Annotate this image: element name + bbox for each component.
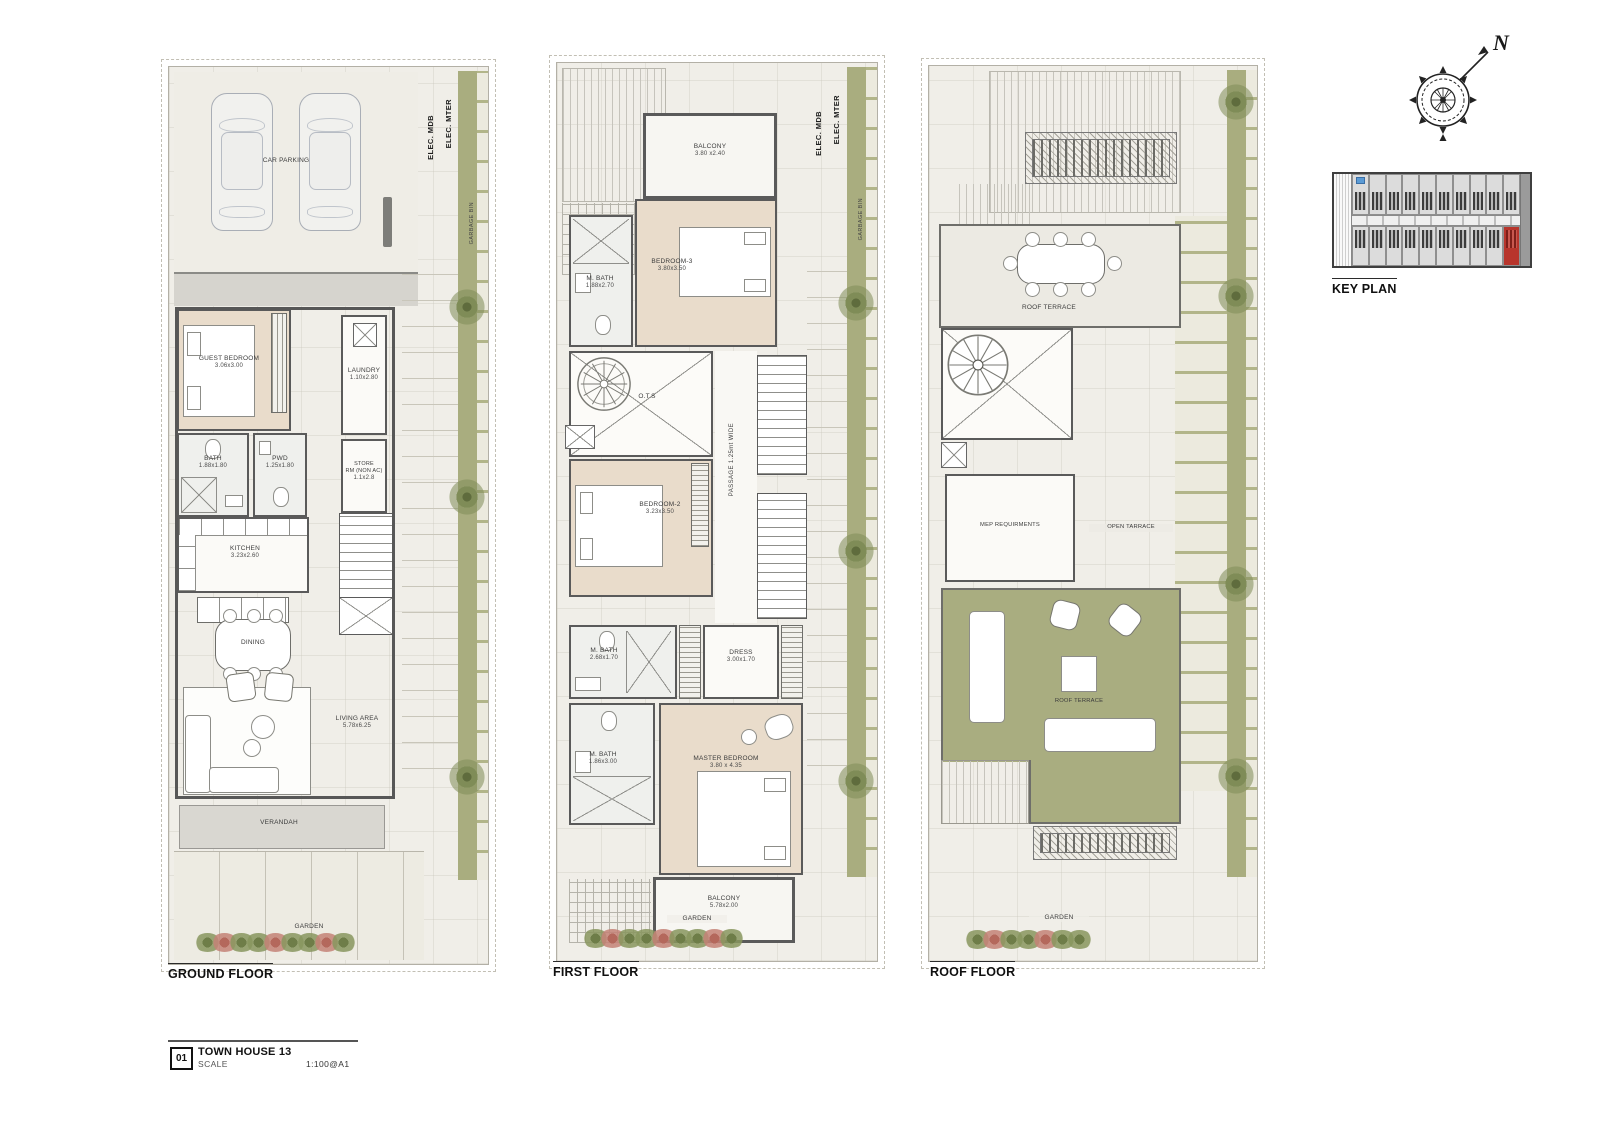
chair-icon (247, 609, 261, 623)
drawing-number-box: 01 (170, 1047, 193, 1070)
toilet-icon (595, 315, 611, 335)
pillow (187, 332, 201, 356)
keyplan-unit (1436, 226, 1453, 267)
keyplan-unit (1470, 174, 1487, 215)
titleblock-rule (168, 1040, 358, 1042)
washer-icon (353, 323, 377, 347)
armchair-icon (762, 711, 797, 743)
car-parking-label: CAR PARKING (251, 157, 321, 165)
shrub-row (969, 930, 1088, 954)
elec-mdb-label: ELEC. MDB (427, 115, 435, 160)
kitchen-counter (179, 519, 307, 536)
kitchen-label: KITCHEN3.23x2.60 (205, 545, 285, 561)
keyplan-unit (1386, 174, 1403, 215)
tree-icon (1218, 758, 1254, 794)
keyplan-street (1352, 215, 1520, 226)
shrub-row (587, 929, 740, 953)
drawing-number: 01 (176, 1053, 187, 1064)
verandah-label: VERANDAH (229, 819, 329, 827)
scale-label: SCALE (198, 1059, 228, 1069)
bath-label: BATH1.88x1.80 (183, 455, 243, 471)
roof-slats (959, 184, 1033, 224)
ots-label: O.T.S (627, 393, 667, 401)
pillow (744, 279, 766, 292)
pillow (580, 492, 593, 514)
side-paving-band (1246, 70, 1257, 877)
chair-icon (1025, 282, 1040, 297)
driveway-apron (174, 272, 418, 306)
elec-mter-label: ELEC. MTER (833, 95, 841, 144)
chair-icon (269, 609, 283, 623)
stair-landing (339, 597, 393, 635)
pwd-label: PWD1.25x1.80 (255, 455, 305, 471)
keyplan-unit (1352, 226, 1369, 267)
pillow (187, 386, 201, 410)
side-table (243, 739, 261, 757)
car-windshield (219, 118, 265, 132)
shower-icon (181, 477, 217, 513)
keyplan-row-top (1352, 174, 1520, 215)
tree-icon (838, 285, 874, 321)
chair-icon (223, 609, 237, 623)
first-floor-plan: ELEC. MDB ELEC. MTER GARBAGE BIN BALCONY… (556, 62, 878, 962)
shrub-icon (330, 933, 357, 952)
chair-icon (1053, 282, 1068, 297)
mbath2-label: M. BATH2.68x1.70 (573, 647, 635, 663)
north-compass: N (1390, 28, 1530, 168)
tree-icon (838, 763, 874, 799)
garbage-bin-label: GARBAGE BIN (858, 198, 864, 240)
ground-floor-plan: CAR PARKING ELEC. MDB ELEC. MTER GARBAGE… (168, 66, 489, 965)
outdoor-dining-table (1017, 244, 1105, 284)
dress-label: DRESS3.00x1.70 (709, 649, 773, 665)
keyplan-unit (1369, 174, 1386, 215)
compass-rose: N (1409, 30, 1510, 141)
pergola-hatch (1033, 826, 1177, 860)
keyplan-unit (1386, 226, 1403, 267)
shaft-box (565, 425, 595, 449)
chair-icon (1107, 256, 1122, 271)
balcony-top-label: BALCONY3.80 x2.40 (675, 143, 745, 159)
keyplan-unit (1503, 174, 1520, 215)
shrub-icon (1066, 930, 1093, 949)
shower-icon (573, 776, 651, 821)
chair-icon (1003, 256, 1018, 271)
guest-bedroom-label: GUEST BEDROOM3.06x3.00 (189, 355, 269, 371)
keyplan-unit (1453, 226, 1470, 267)
keyplan-unit (1369, 226, 1386, 267)
open-terrace-label: OPEN TARRACE (1089, 524, 1173, 532)
balcony-bottom-label: BALCONY5.78x2.00 (689, 895, 759, 911)
tree-icon (838, 533, 874, 569)
tree-icon (449, 479, 485, 515)
mep-label: MEP REQUIRMENTS (955, 522, 1065, 530)
keyplan-entry-road (1334, 174, 1352, 266)
wardrobe (271, 313, 287, 413)
keyplan-unit-highlighted (1503, 226, 1520, 267)
key-plan (1332, 172, 1532, 268)
roof-terrace-lounge-label: ROOF TERRACE (1039, 698, 1119, 706)
chair-icon (1081, 232, 1096, 247)
roof-floor-title: ROOF FLOOR (930, 961, 1015, 979)
bedroom3-label: BEDROOM-33.80x3.50 (641, 258, 703, 274)
roof-slats (941, 760, 1029, 824)
roof-terrace-lounge-ext (1029, 760, 1181, 824)
keyplan-row-bottom (1352, 226, 1520, 267)
garden-label: GARDEN (1029, 914, 1089, 922)
toilet-icon (273, 487, 289, 507)
laundry-label: LAUNDRY1.10x2.80 (341, 367, 387, 383)
keyplan-unit (1419, 226, 1436, 267)
roof-floor-plan: ROOF TERRACE MEP REQUIRMENTS OPEN TARRAC… (928, 65, 1258, 962)
bath-room (177, 433, 249, 517)
scale-value: 1:100@A1 (306, 1059, 350, 1069)
side-paving-band (477, 71, 488, 880)
tree-icon (1218, 278, 1254, 314)
shower-icon (573, 219, 629, 264)
kitchen-counter (179, 535, 196, 591)
keyplan-unit (1352, 174, 1369, 215)
keyplan-unit (1453, 174, 1470, 215)
pergola-bars (1032, 139, 1170, 177)
chair-icon (1053, 232, 1068, 247)
passage-label: PASSAGE 1.25mt WIDE (729, 423, 736, 496)
wardrobe (679, 625, 701, 699)
toilet-icon (601, 711, 617, 731)
pillow (744, 232, 766, 245)
garbage-bin-label: GARBAGE BIN (469, 202, 475, 244)
keyplan-endcap (1520, 174, 1530, 266)
roof-terrace-upper-label: ROOF TERRACE (999, 304, 1099, 312)
ground-floor-title: GROUND FLOOR (168, 963, 273, 981)
bed-icon (575, 485, 663, 567)
tree-icon (449, 289, 485, 325)
bedroom2-label: BEDROOM-23.23x3.50 (629, 501, 691, 517)
keyplan-detail (1356, 177, 1365, 184)
garden-label: GARDEN (667, 915, 727, 923)
sofa-icon (969, 611, 1005, 723)
wardrobe (691, 463, 709, 547)
shaft-box (941, 442, 967, 468)
pillow (764, 846, 786, 860)
keyplan-unit (1419, 174, 1436, 215)
master-bedroom (659, 703, 803, 875)
car-windshield (307, 118, 353, 132)
east-walkway (807, 253, 847, 791)
wardrobe (781, 625, 803, 699)
keyplan-unit (1402, 174, 1419, 215)
bed-icon (697, 771, 791, 867)
side-garden-strip (847, 67, 866, 877)
keyplan-unit (1470, 226, 1487, 267)
shrub-row (199, 933, 352, 957)
drawing-title: TOWN HOUSE 13 (198, 1046, 291, 1058)
coffee-table (1061, 656, 1097, 692)
armchair-icon (225, 671, 257, 703)
staircase-lower-run (757, 493, 807, 619)
elec-mdb-label: ELEC. MDB (815, 111, 823, 156)
wheel-stop (383, 197, 392, 247)
tree-icon (1218, 84, 1254, 120)
living-label: LIVING AREA5.78x6.25 (317, 715, 397, 731)
pergola-hatch (1025, 132, 1177, 184)
armchair-icon (264, 672, 295, 703)
elec-mter-label: ELEC. MTER (445, 99, 453, 148)
sink-icon (225, 495, 243, 507)
side-garden-strip (1227, 70, 1246, 877)
passage (715, 351, 757, 623)
east-walkway (402, 267, 458, 794)
staircase-upper-run (757, 355, 807, 475)
shrub-icon (718, 929, 745, 948)
drawing-sheet: CAR PARKING ELEC. MDB ELEC. MTER GARBAGE… (0, 0, 1600, 1124)
keyplan-unit (1436, 174, 1453, 215)
pillow (764, 778, 786, 792)
dining-label: DINING (223, 639, 283, 647)
first-floor-title: FIRST FLOOR (553, 961, 639, 979)
master-bedroom-label: MASTER BEDROOM3.80 x 4.35 (681, 755, 771, 771)
side-paving-band (866, 67, 877, 877)
tree-icon (449, 759, 485, 795)
chair-icon (1081, 282, 1096, 297)
pillow (580, 538, 593, 560)
bedroom-2 (569, 459, 713, 597)
car-rear-window (307, 206, 353, 218)
store-label: STORERM (NON AC)1.1x2.8 (341, 461, 387, 483)
sofa-icon (185, 715, 211, 793)
garden-label: GARDEN (279, 923, 339, 931)
pergola-bars (1040, 833, 1170, 853)
key-plan-title: KEY PLAN (1332, 278, 1397, 296)
sofa-icon (1044, 718, 1156, 752)
mbath-master-label: M. BATH1.86x3.00 (573, 751, 633, 767)
keyplan-unit (1486, 226, 1503, 267)
car-rear-window (219, 206, 265, 218)
north-label: N (1492, 30, 1510, 55)
spiral-stair-icon (945, 332, 1011, 398)
coffee-table (251, 715, 275, 739)
keyplan-unit (1402, 226, 1419, 267)
fan-skylight-icon (575, 355, 633, 413)
side-table (741, 729, 757, 745)
sofa-icon (209, 767, 279, 793)
tree-icon (1218, 566, 1254, 602)
chair-icon (1025, 232, 1040, 247)
mbath3-label: M. BATH1.88x2.70 (571, 275, 629, 291)
keyplan-units (1352, 174, 1520, 266)
sink-icon (575, 677, 601, 691)
powder-room (253, 433, 307, 517)
sink-icon (259, 441, 271, 455)
keyplan-unit (1486, 174, 1503, 215)
